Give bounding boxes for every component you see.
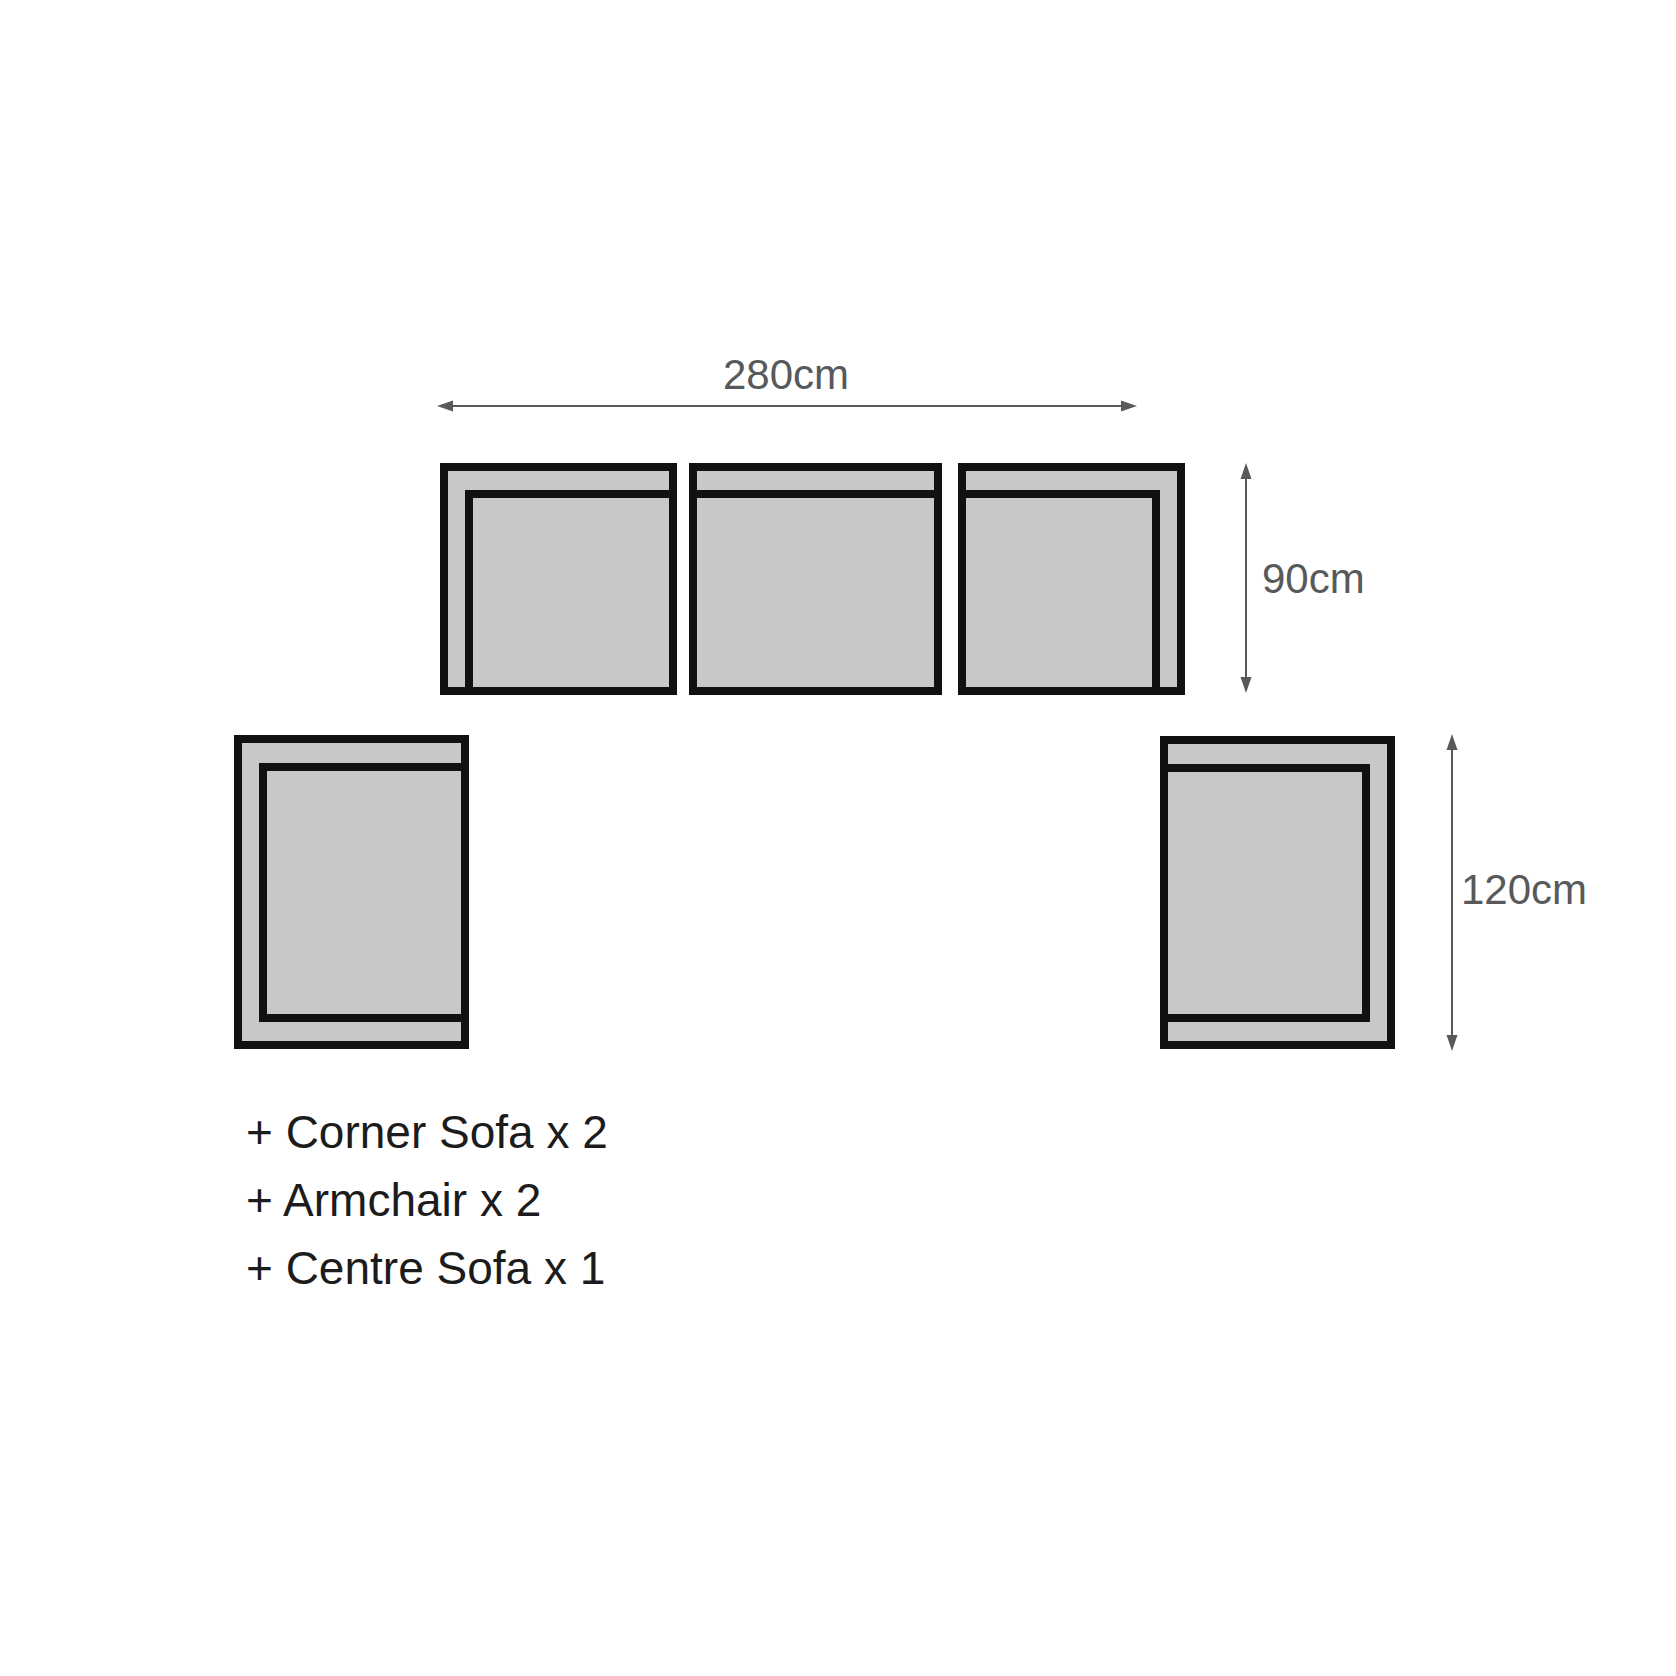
width-dimension-label: 280cm [686, 353, 886, 397]
parts-list: + Corner Sofa x 2 + Armchair x 2 + Centr… [246, 1098, 608, 1302]
centre-sofa [689, 463, 942, 695]
corner-sofa-right-seat [958, 490, 1160, 695]
armchair-left [234, 735, 469, 1049]
parts-list-item-armchair: + Armchair x 2 [246, 1166, 608, 1234]
armchair-right-seat [1160, 764, 1370, 1022]
depth-dimension-arrow [1241, 463, 1252, 693]
centre-sofa-backrest-line [697, 490, 934, 498]
corner-sofa-right [958, 463, 1185, 695]
corner-sofa-left [440, 463, 677, 695]
furniture-dimension-diagram: 280cm 90cm 120cm [0, 0, 1676, 1676]
depth-dimension-label: 90cm [1262, 557, 1365, 601]
side-depth-dimension-label: 120cm [1461, 868, 1587, 912]
parts-list-item-centre-sofa: + Centre Sofa x 1 [246, 1234, 608, 1302]
width-dimension-arrow [437, 401, 1137, 412]
parts-list-item-corner-sofa: + Corner Sofa x 2 [246, 1098, 608, 1166]
side-depth-dimension-arrow [1447, 734, 1458, 1051]
armchair-left-seat [259, 763, 469, 1022]
corner-sofa-left-seat [465, 490, 677, 695]
armchair-right [1160, 736, 1395, 1049]
